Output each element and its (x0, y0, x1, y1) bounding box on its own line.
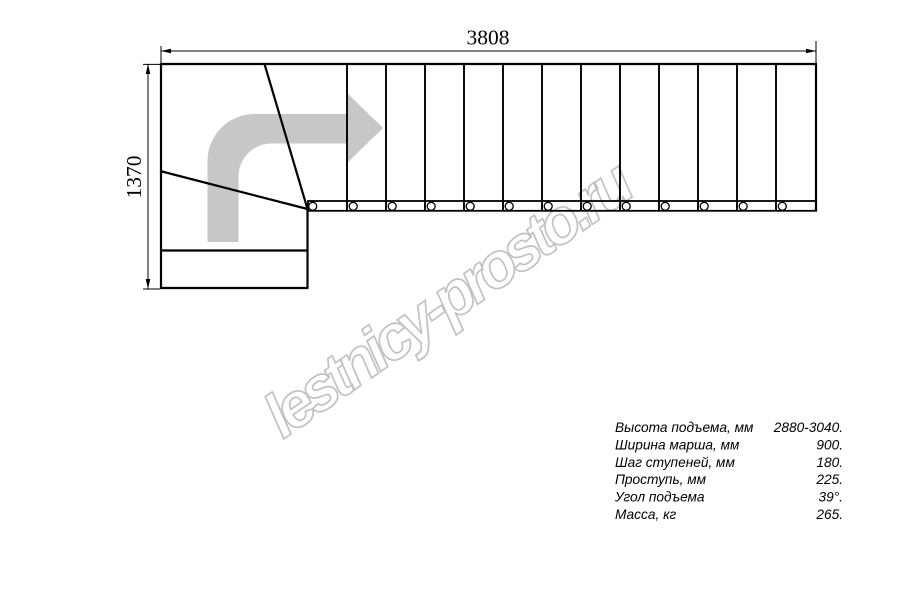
svg-text:3808: 3808 (467, 25, 510, 49)
svg-text:1370: 1370 (122, 156, 146, 199)
svg-text:225.: 225. (815, 472, 843, 487)
svg-text:Шаг ступеней, мм: Шаг ступеней, мм (615, 455, 735, 470)
svg-text:39°.: 39°. (818, 490, 843, 505)
svg-text:265.: 265. (815, 507, 843, 522)
svg-text:Масса, кг: Масса, кг (615, 507, 677, 522)
svg-text:2880-3040.: 2880-3040. (773, 420, 843, 435)
svg-text:900.: 900. (816, 437, 843, 452)
svg-text:Ширина марша, мм: Ширина марша, мм (615, 437, 740, 452)
svg-text:Проступь, мм: Проступь, мм (615, 472, 707, 487)
svg-text:Угол подъема: Угол подъема (614, 490, 705, 505)
svg-text:Высота подъема, мм: Высота подъема, мм (615, 420, 754, 435)
svg-text:180.: 180. (816, 455, 843, 470)
